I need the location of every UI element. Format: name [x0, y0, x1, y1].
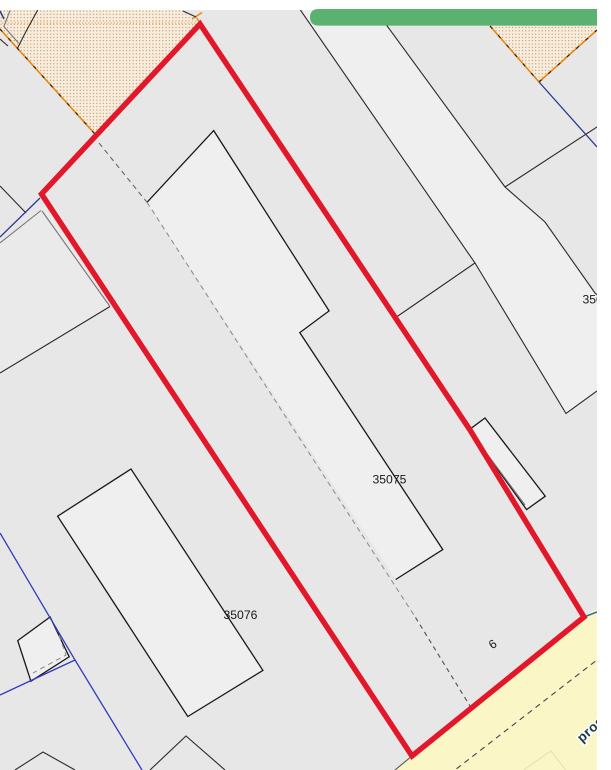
- svg-text:35075: 35075: [373, 472, 407, 486]
- svg-text:35076: 35076: [224, 608, 258, 622]
